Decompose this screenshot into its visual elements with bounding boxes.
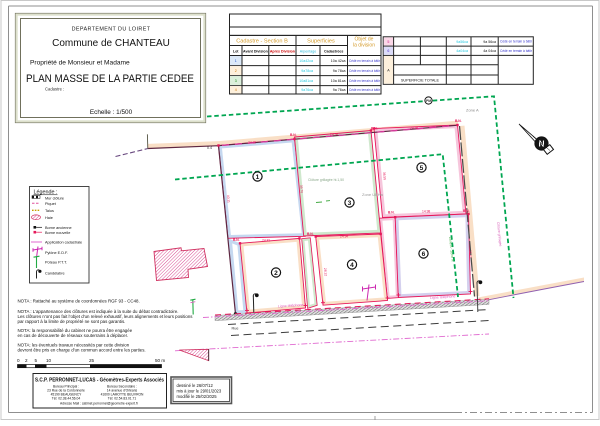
svg-text:5: 5 (387, 40, 389, 44)
svg-text:3: 3 (348, 200, 352, 207)
svg-text:modifié le 25/02/2025: modifié le 25/02/2025 (177, 394, 218, 399)
svg-text:40.11: 40.11 (226, 195, 231, 204)
svg-text:2: 2 (235, 69, 237, 73)
svg-text:S.C.P. PERRONNET-LUCAS - Géo: S.C.P. PERRONNET-LUCAS - Géomètres-Exper… (35, 378, 164, 384)
svg-text:Tél: 02.38.44.56.04: Tél: 02.38.44.56.04 (52, 397, 81, 401)
svg-text:dessiné le 26/07/12: dessiné le 26/07/12 (177, 383, 214, 388)
svg-text:5: 5 (420, 165, 424, 172)
svg-text:Cédé en terrain à bâtir: Cédé en terrain à bâtir (349, 79, 381, 83)
svg-text:1: 1 (235, 59, 237, 63)
svg-text:4: 4 (235, 88, 237, 92)
svg-text:Haie: Haie (45, 216, 53, 220)
svg-text:devront être pris en charge d’: devront être pris en charge d’un commun … (18, 348, 146, 353)
svg-text:9a56ca: 9a56ca (456, 40, 468, 44)
svg-text:Cédé en terrain à bâtir: Cédé en terrain à bâtir (349, 59, 381, 63)
svg-text:9a 76ca: 9a 76ca (333, 88, 346, 92)
svg-text:Application cadastrale: Application cadastrale (45, 241, 82, 245)
svg-text:DEPARTEMENT DU LOIRET: DEPARTEMENT DU LOIRET (72, 27, 151, 33)
svg-text:Cédé en terrain à bâtir: Cédé en terrain à bâtir (500, 40, 533, 44)
svg-text:PM: PM (426, 99, 431, 103)
svg-text:Piquet: Piquet (45, 202, 57, 206)
svg-text:Cadastre - Section B: Cadastre - Section B (236, 39, 288, 45)
svg-text:4: 4 (350, 262, 354, 269)
svg-text:10a 81ca: 10a 81ca (331, 79, 346, 83)
svg-text:Commune de CHANTEAU: Commune de CHANTEAU (52, 38, 170, 49)
svg-text:9a78ca: 9a78ca (301, 69, 313, 73)
svg-text:29.45: 29.45 (468, 250, 472, 259)
svg-text:2: 2 (274, 270, 278, 277)
svg-text:50 m: 50 m (155, 358, 165, 363)
svg-text:B.N.: B.N. (463, 209, 470, 213)
svg-text:Propriété de Monsieur et Madam: Propriété de Monsieur et Madame (30, 60, 130, 67)
svg-text:10: 10 (46, 358, 52, 363)
svg-text:Candélabre: Candélabre (45, 272, 65, 276)
svg-text:Clôture grillagée ht.1,50: Clôture grillagée ht.1,50 (308, 178, 344, 182)
svg-text:B.N.: B.N. (455, 119, 462, 123)
svg-text:3: 3 (235, 79, 237, 83)
svg-text:Après Division: Après Division (270, 50, 295, 54)
svg-text:par rapport à la limite de pro: par rapport à la limite de propriété ne … (18, 319, 126, 324)
svg-text:Zone A: Zone A (466, 108, 479, 113)
svg-text:4a 04ca: 4a 04ca (483, 49, 496, 53)
svg-text:24.98: 24.98 (410, 126, 418, 130)
svg-text:10a81ca: 10a81ca (299, 79, 313, 83)
svg-text:Lot: Lot (233, 50, 239, 54)
svg-text:24.94: 24.94 (340, 235, 348, 239)
svg-text:24.89: 24.89 (248, 141, 256, 145)
svg-text:6: 6 (422, 251, 426, 258)
svg-text:B.N.: B.N. (290, 133, 297, 137)
svg-text:25: 25 (89, 358, 95, 363)
svg-text:24.94: 24.94 (330, 133, 338, 137)
svg-text:10a 42ca: 10a 42ca (331, 59, 346, 63)
svg-text:Avant Division: Avant Division (243, 50, 268, 54)
svg-text:Légende :: Légende : (34, 190, 58, 196)
svg-text:0.4: 0.4 (207, 146, 212, 150)
svg-text:2: 2 (25, 358, 28, 363)
svg-text:B.N.: B.N. (307, 232, 314, 236)
svg-text:mis à jour le 29/01/2023: mis à jour le 29/01/2023 (177, 389, 222, 394)
svg-text:14.98: 14.98 (422, 210, 430, 214)
svg-text:B.N.: B.N. (388, 211, 395, 215)
svg-text:4a04ca: 4a04ca (456, 49, 468, 53)
svg-text:Talus: Talus (45, 209, 54, 213)
svg-text:24.81: 24.81 (262, 239, 270, 243)
svg-text:NOTA : Rattaché au système de: NOTA : Rattaché au système de coordonnée… (18, 299, 140, 304)
svg-text:Cédé en terrain à bâtir: Cédé en terrain à bâtir (349, 69, 381, 73)
svg-text:9a 56ca: 9a 56ca (483, 40, 496, 44)
svg-text:5: 5 (35, 358, 38, 363)
svg-text:9a 78ca: 9a 78ca (333, 69, 346, 73)
svg-text:Cédé en terrain à bâtir: Cédé en terrain à bâtir (500, 49, 533, 53)
svg-text:Cadastrées: Cadastrées (324, 50, 343, 54)
svg-text:0: 0 (17, 358, 20, 363)
svg-text:Adresse Mail : cabinet.perronn: Adresse Mail : cabinet.perronnet@geometr… (60, 402, 139, 406)
svg-text:PLAN MASSE DE LA PARTIE CEDEE: PLAN MASSE DE LA PARTIE CEDEE (26, 73, 194, 85)
svg-text:la division: la division (353, 43, 375, 49)
svg-text:6: 6 (387, 49, 389, 53)
svg-text:9a76ca: 9a76ca (301, 88, 313, 92)
svg-text:Mur clôture: Mur clôture (45, 196, 64, 200)
svg-text:Pylône E.D.F.: Pylône E.D.F. (45, 251, 68, 255)
svg-text:Poteau P.T.T.: Poteau P.T.T. (45, 261, 67, 265)
svg-text:Cédé en terrain à bâtir: Cédé en terrain à bâtir (349, 88, 381, 92)
svg-text:Borne ancienne: Borne ancienne (45, 226, 72, 230)
svg-text:Zone UBHa: Zone UBHa (362, 192, 384, 197)
svg-text:en cas de découverte de réseau: en cas de découverte de réseaux souterra… (18, 333, 129, 338)
svg-text:B.N.: B.N. (233, 238, 240, 242)
svg-text:Echelle : 1/500: Echelle : 1/500 (90, 109, 133, 116)
svg-text:Rue: Rue (232, 327, 239, 331)
svg-text:Tél: 02.54.83.01.71: Tél: 02.54.83.01.71 (108, 397, 137, 401)
svg-text:SUPERFICIE TOTALE: SUPERFICIE TOTALE (401, 78, 440, 82)
svg-text:1: 1 (256, 174, 260, 181)
svg-text:Cadastre :: Cadastre : (45, 87, 64, 92)
svg-text:10a42ca: 10a42ca (299, 59, 313, 63)
svg-text:Borne nouvelle: Borne nouvelle (45, 231, 70, 235)
svg-text:Arpentage: Arpentage (300, 50, 317, 54)
svg-text:Superficies: Superficies (307, 39, 335, 45)
